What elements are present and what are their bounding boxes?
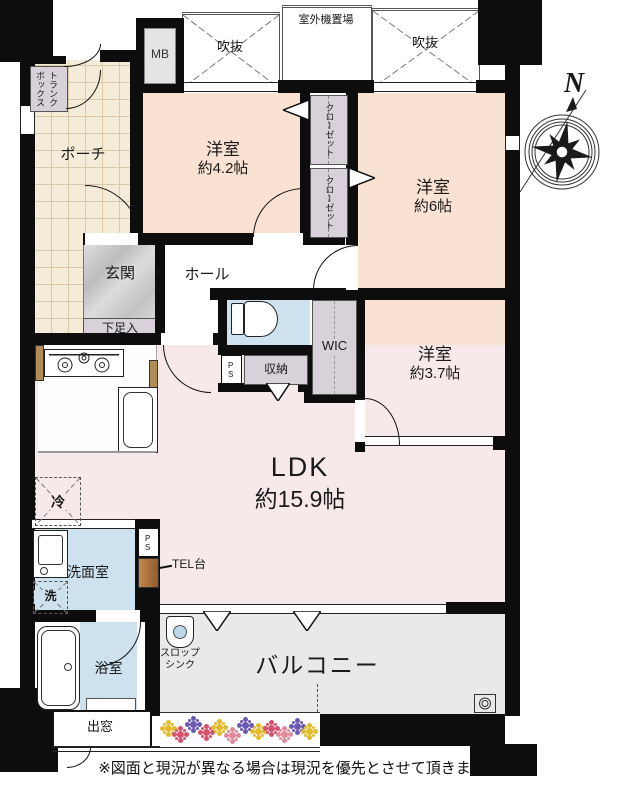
bedroom42-name-label: 洋室 bbox=[153, 140, 293, 160]
flower-icon bbox=[229, 732, 236, 739]
fridge-label: 冷 bbox=[36, 494, 80, 510]
ps-box-1: PS bbox=[221, 355, 242, 384]
slop-sink bbox=[166, 616, 194, 648]
void-1-label: 吹抜 bbox=[182, 40, 278, 55]
door-opening-bathroom bbox=[96, 610, 140, 622]
slop-sink-label-2: シンク bbox=[150, 660, 210, 672]
bay-window: 出窓 bbox=[52, 710, 152, 748]
flower-icon bbox=[255, 728, 262, 735]
vanity-basin bbox=[38, 535, 63, 565]
wall-segment bbox=[278, 80, 374, 93]
drain-icon bbox=[475, 695, 495, 712]
mb-label: MB bbox=[142, 48, 178, 62]
triangle-closet2-icon bbox=[349, 168, 375, 188]
ps-box-2: PS bbox=[138, 528, 159, 557]
tel-stand bbox=[138, 558, 159, 588]
washroom-label: 洗面室 bbox=[48, 564, 128, 580]
slop-sink-label-1: スロップ bbox=[150, 648, 210, 660]
wic-label: WIC bbox=[313, 339, 356, 354]
door-opening-bedroom37 bbox=[355, 400, 365, 442]
stove-burners-icon bbox=[45, 350, 123, 376]
toilet-bowl bbox=[244, 301, 278, 337]
outdoor-unit-label: 室外機置場 bbox=[282, 14, 370, 27]
compass-arrowhead bbox=[566, 97, 577, 112]
compass-rose-icon: N bbox=[512, 66, 621, 198]
trunk-box: トランクボックス bbox=[30, 66, 68, 112]
bathtub-drain bbox=[64, 663, 72, 671]
bedroom37-size-label: 約3.7帖 bbox=[380, 365, 490, 382]
flower-icon bbox=[294, 723, 301, 730]
flower-icon bbox=[216, 724, 223, 731]
window-bedroom6-top bbox=[374, 82, 476, 92]
void-2-label: 吹抜 bbox=[372, 36, 478, 51]
room-porch-lower bbox=[35, 235, 83, 335]
washer-label: 洗 bbox=[34, 590, 67, 604]
wall-genkan-hall bbox=[155, 235, 165, 345]
storage-label: 収納 bbox=[245, 363, 307, 377]
wall-bedroom37-bottom-right bbox=[493, 436, 520, 450]
wall-segment bbox=[30, 56, 66, 64]
flower-icon bbox=[203, 729, 210, 736]
trunk-box-label: トランクボックス bbox=[33, 69, 59, 109]
floor-plan: トランクボックス MB クローゼット クローゼット WIC 収納 PS PS 冷 bbox=[0, 0, 621, 800]
bedroom42-size-label: 約4.2帖 bbox=[153, 160, 293, 177]
wall-bottom-right-block-a bbox=[320, 714, 505, 746]
triangle-closet1-icon bbox=[283, 100, 309, 120]
bedroom6-name-label: 洋室 bbox=[378, 178, 488, 198]
flower-icon bbox=[242, 722, 249, 729]
kitchen-wood-post-left bbox=[35, 345, 44, 381]
bedroom37-name-label: 洋室 bbox=[380, 345, 490, 365]
bedroom6-size-label: 約6帖 bbox=[378, 198, 488, 215]
wall-balcony-top-right bbox=[446, 602, 505, 614]
wall-bedroom6-bottom bbox=[210, 288, 520, 300]
porch-label: ポーチ bbox=[47, 146, 119, 163]
door-arc-bedroom6 bbox=[313, 245, 358, 290]
washer-box: 洗 bbox=[33, 581, 68, 614]
compass-north-label: N bbox=[563, 68, 586, 99]
kitchen-sink bbox=[123, 392, 153, 448]
closet-2-label: クローゼット bbox=[324, 172, 334, 234]
kitchen-counter-edge bbox=[38, 451, 156, 453]
toilet-tank bbox=[231, 303, 244, 335]
wall-top-left-block bbox=[0, 0, 53, 62]
bathtub bbox=[37, 626, 80, 710]
triangle-balcony-window-icon bbox=[203, 611, 231, 631]
triangle-storage-icon bbox=[266, 383, 290, 401]
flower-icon bbox=[190, 721, 197, 728]
slop-sink-basin bbox=[173, 625, 187, 639]
genkan-label: 玄関 bbox=[95, 265, 145, 282]
wic-box: WIC bbox=[312, 300, 357, 395]
railing-line bbox=[52, 751, 320, 752]
wall-top-right-block bbox=[478, 0, 542, 65]
flower-bed bbox=[160, 712, 320, 748]
flower-icon bbox=[268, 725, 275, 732]
tel-stand-label: TEL台 bbox=[172, 558, 224, 572]
wall-toilet-left bbox=[218, 297, 227, 347]
vanity-faucet bbox=[40, 567, 48, 575]
balcony-drain bbox=[474, 694, 496, 713]
storage-box: 収納 bbox=[244, 355, 308, 385]
bathroom-label: 浴室 bbox=[81, 660, 136, 676]
balcony-leader-line bbox=[317, 684, 318, 712]
wall-toilet-bottom bbox=[218, 345, 318, 355]
shoe-box-label: 下足入 bbox=[95, 322, 145, 336]
flower-icon bbox=[177, 731, 184, 738]
bay-window-label: 出窓 bbox=[54, 720, 146, 735]
ldk-size-label: 約15.9帖 bbox=[180, 486, 420, 512]
balcony-label: バルコニー bbox=[230, 652, 405, 678]
closet-2: クローゼット bbox=[310, 168, 348, 238]
closet-1-label: クローゼット bbox=[324, 99, 334, 161]
hall-label: ホール bbox=[172, 266, 242, 283]
door-opening-hall-ldk bbox=[161, 333, 213, 345]
ps-2-label: PS bbox=[143, 531, 152, 554]
ldk-name-label: LDK bbox=[180, 452, 420, 483]
flower-icon bbox=[165, 725, 172, 732]
triangle-balcony-window-icon bbox=[293, 611, 321, 631]
stove bbox=[44, 349, 124, 377]
flower-icon bbox=[281, 731, 288, 738]
ps-1-label: PS bbox=[226, 358, 235, 381]
closet-1: クローゼット bbox=[310, 95, 348, 165]
flower-icon bbox=[306, 728, 313, 735]
window-bedroom42-top bbox=[184, 82, 278, 92]
disclaimer-text: ※図面と現況が異なる場合は現況を優先とさせて頂きます bbox=[62, 760, 522, 777]
fridge-box: 冷 bbox=[35, 477, 81, 526]
